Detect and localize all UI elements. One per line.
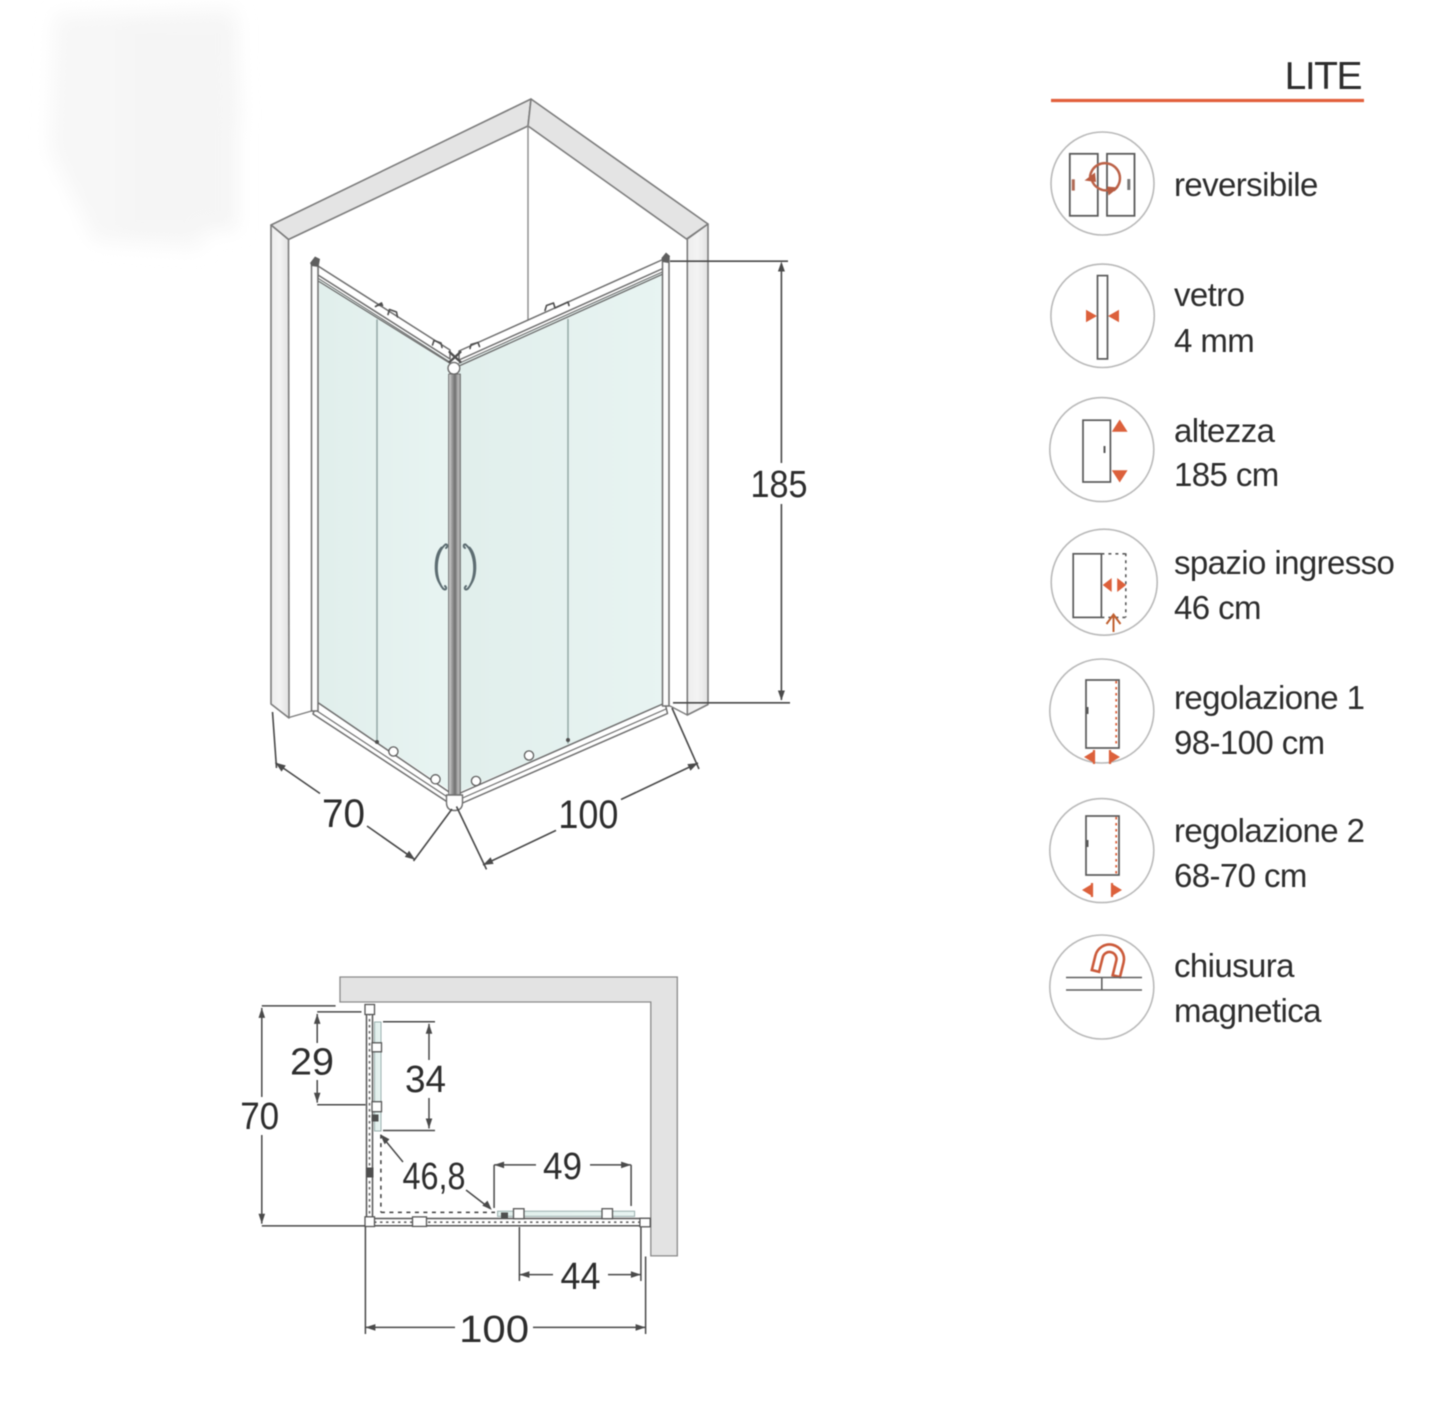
svg-text:vetro: vetro: [1174, 276, 1244, 313]
svg-text:reversibile: reversibile: [1174, 166, 1318, 203]
svg-text:70: 70: [240, 1096, 279, 1138]
svg-text:magnetica: magnetica: [1174, 992, 1322, 1029]
svg-text:LITE: LITE: [1285, 55, 1362, 98]
svg-text:68-70 cm: 68-70 cm: [1174, 857, 1307, 894]
svg-text:46 cm: 46 cm: [1174, 589, 1261, 626]
svg-text:34: 34: [405, 1059, 446, 1101]
svg-text:regolazione 2: regolazione 2: [1174, 812, 1364, 849]
svg-text:spazio ingresso: spazio ingresso: [1174, 544, 1394, 581]
svg-text:70: 70: [322, 792, 365, 836]
svg-text:altezza: altezza: [1174, 412, 1276, 449]
svg-text:29: 29: [290, 1042, 334, 1084]
svg-text:185 cm: 185 cm: [1174, 456, 1279, 493]
svg-text:100: 100: [558, 793, 618, 837]
svg-text:chiusura: chiusura: [1174, 947, 1295, 984]
svg-text:49: 49: [543, 1146, 582, 1188]
svg-text:100: 100: [459, 1309, 529, 1351]
svg-text:46,8: 46,8: [403, 1156, 466, 1198]
svg-text:44: 44: [561, 1256, 601, 1298]
svg-text:4 mm: 4 mm: [1174, 322, 1254, 359]
svg-text:regolazione 1: regolazione 1: [1174, 679, 1364, 716]
svg-text:185: 185: [751, 464, 808, 506]
svg-text:98-100 cm: 98-100 cm: [1174, 724, 1325, 761]
